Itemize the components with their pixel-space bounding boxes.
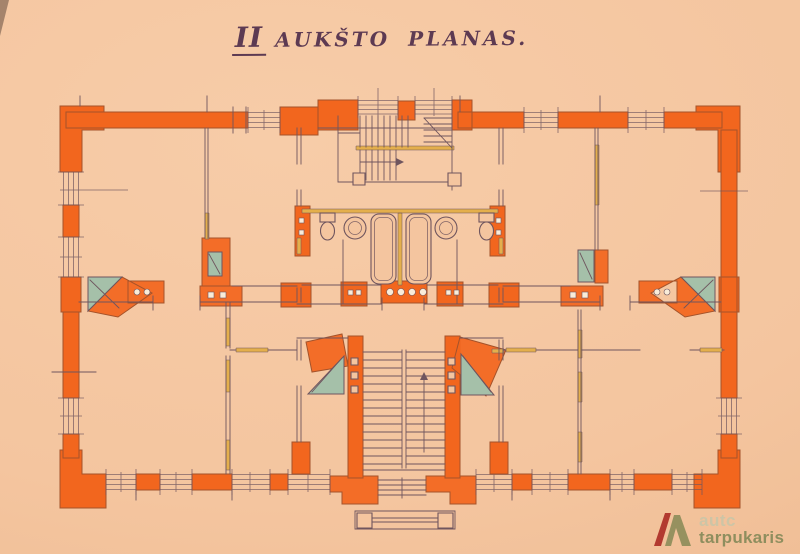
stair-wall-flue-squares [351, 358, 455, 393]
watermark: autc tarpukaris [652, 510, 784, 547]
washbasin-left [344, 217, 366, 239]
drawing-title: IIAUKŠTO PLANAS. [0, 17, 760, 55]
watermark-text: autc tarpukaris [699, 512, 784, 547]
upper-stair-landing-posts [353, 173, 461, 186]
floor-plan-drawing [0, 0, 800, 554]
wall-right-runs [719, 130, 739, 458]
wall-left-runs [61, 205, 81, 458]
toilet-bowl-left [321, 222, 335, 240]
toilet-bowl-right [480, 222, 494, 240]
watermark-logo-icon [652, 510, 692, 547]
scanned-floor-plan-page: { "title": { "full": "II AUKŠTO PLANAS."… [0, 0, 800, 554]
watermark-line1: autc [699, 512, 784, 529]
title-floor-numeral: II [232, 21, 266, 56]
title-text: AUKŠTO PLANAS. [275, 26, 528, 52]
porch-columns [357, 513, 453, 528]
toilet-tank-left [320, 213, 335, 222]
toilet-tank-right [479, 213, 494, 222]
wall-bottom-runs [136, 474, 672, 490]
watermark-line2: tarpukaris [699, 529, 784, 546]
washbasin-right [435, 217, 457, 239]
upper-stair-lines [318, 116, 452, 190]
